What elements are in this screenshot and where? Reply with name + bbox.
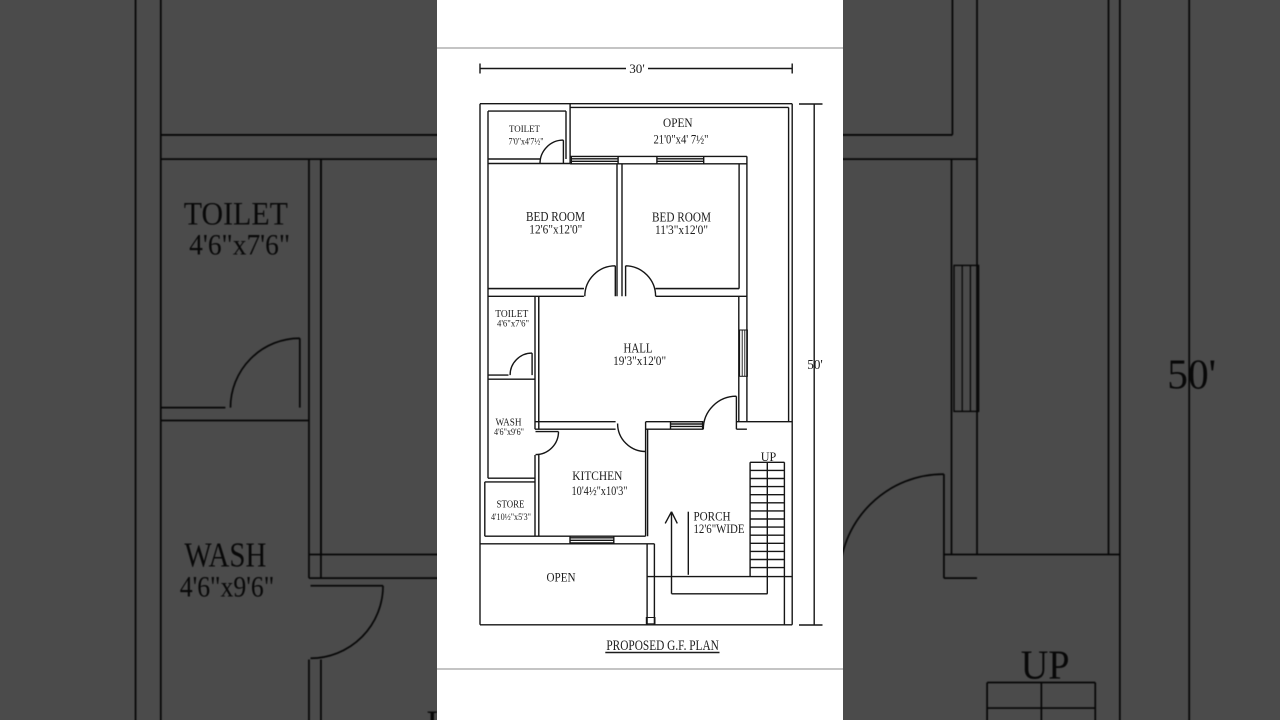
svg-text:OPEN: OPEN: [663, 115, 693, 130]
svg-text:19'3"x12'0": 19'3"x12'0": [613, 353, 666, 368]
svg-text:7'0"x4'7½": 7'0"x4'7½": [509, 137, 544, 148]
svg-text:50': 50': [807, 357, 823, 372]
svg-text:UP: UP: [761, 449, 777, 464]
svg-text:30': 30': [629, 62, 645, 76]
svg-text:OPEN: OPEN: [547, 571, 576, 585]
svg-text:10'4½"x10'3": 10'4½"x10'3": [572, 483, 628, 498]
svg-text:12'6"WIDE: 12'6"WIDE: [694, 522, 745, 536]
svg-text:TOILET: TOILET: [495, 309, 529, 320]
svg-text:4'6"x9'6": 4'6"x9'6": [494, 428, 524, 438]
svg-text:STORE: STORE: [497, 500, 525, 511]
svg-text:KITCHEN: KITCHEN: [572, 468, 623, 483]
svg-text:12'6"x12'0": 12'6"x12'0": [529, 222, 582, 237]
svg-text:PROPOSED G.F. PLAN: PROPOSED G.F. PLAN: [606, 638, 719, 654]
svg-text:21'0"x4' 7½": 21'0"x4' 7½": [654, 132, 709, 147]
svg-text:4'10½"x5'3": 4'10½"x5'3": [491, 512, 531, 522]
svg-text:WASH: WASH: [496, 417, 522, 429]
svg-text:TOILET: TOILET: [509, 125, 540, 135]
svg-text:11'3"x12'0": 11'3"x12'0": [655, 222, 708, 237]
svg-text:4'6"x7'6": 4'6"x7'6": [497, 320, 529, 330]
